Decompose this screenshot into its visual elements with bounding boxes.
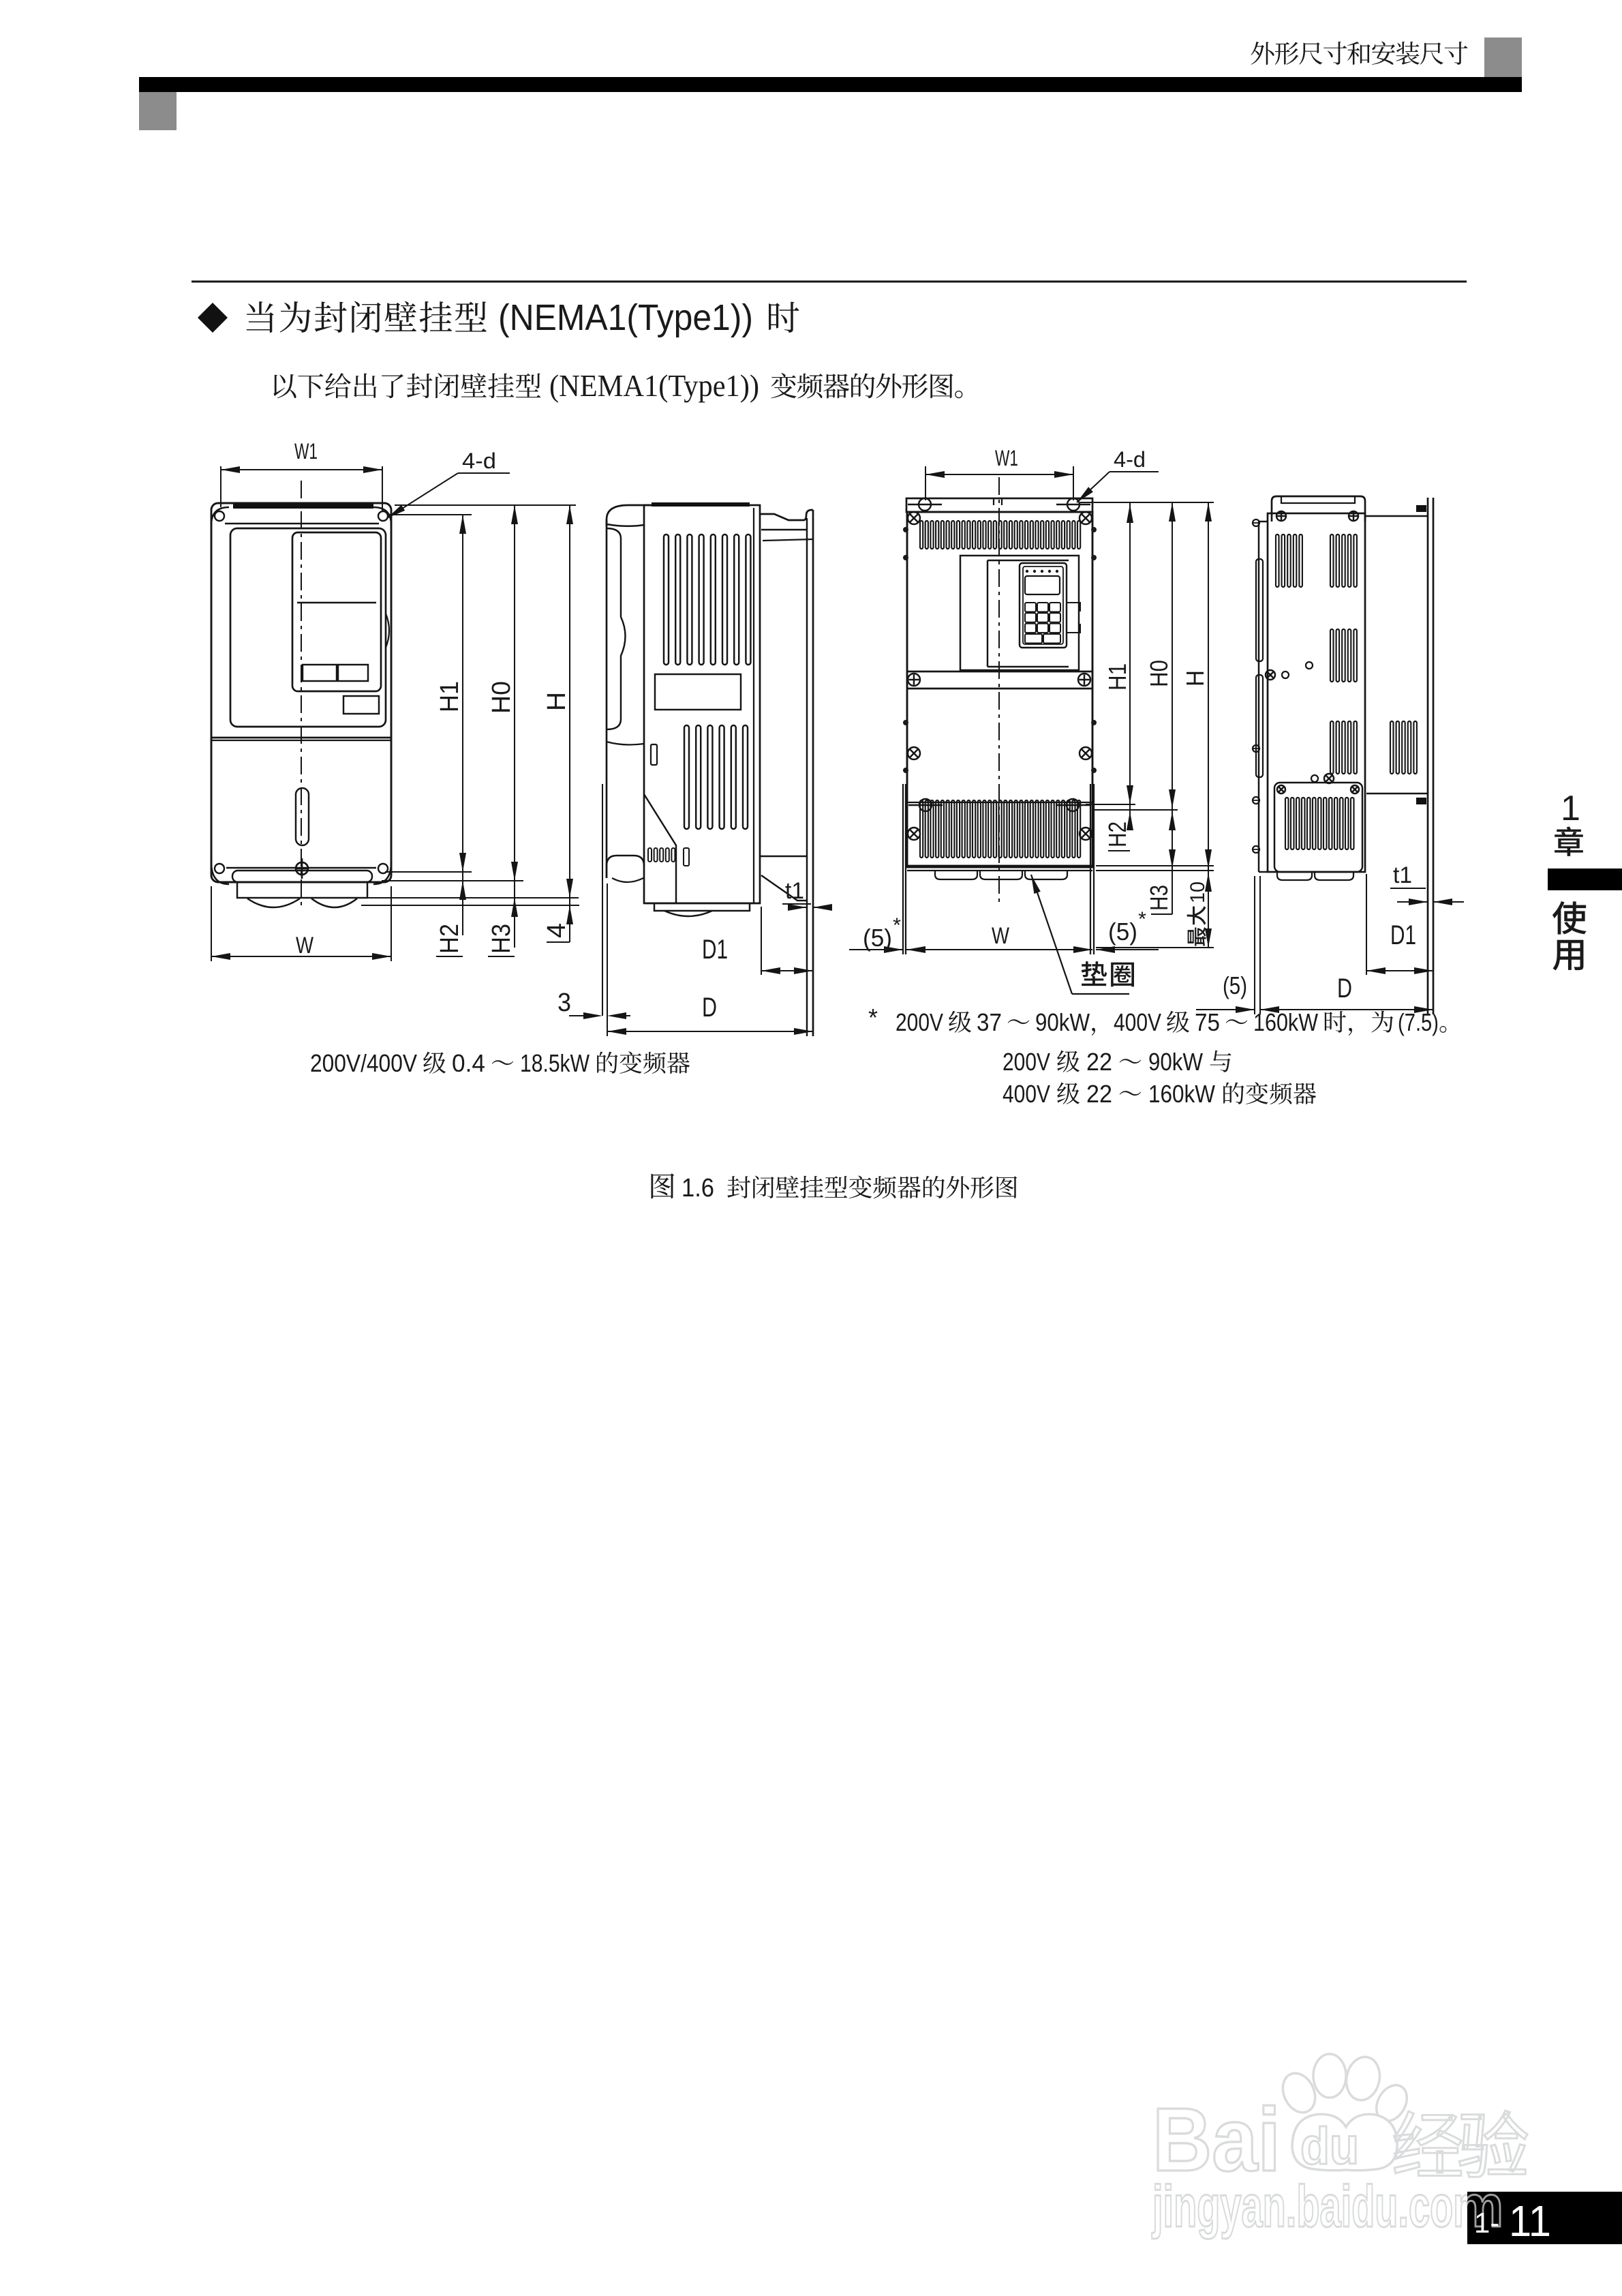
- svg-text:90kW: 90kW: [1035, 1008, 1090, 1036]
- svg-text:200V: 200V: [1003, 1048, 1050, 1076]
- svg-text:W1: W1: [995, 446, 1018, 470]
- svg-text:(5): (5): [1223, 971, 1247, 999]
- svg-text:10: 10: [1187, 881, 1209, 903]
- svg-text:W: W: [296, 933, 313, 958]
- svg-text:t1: t1: [1393, 862, 1412, 888]
- svg-text:11: 11: [1509, 2196, 1551, 2246]
- svg-text:H3: H3: [487, 924, 516, 954]
- svg-text:jingyan.baidu.com: jingyan.baidu.com: [1152, 2174, 1487, 2239]
- svg-text:H2: H2: [435, 924, 464, 954]
- svg-text:400V: 400V: [1114, 1008, 1161, 1036]
- svg-text:(NEMA1(Type1)): (NEMA1(Type1)): [498, 297, 753, 338]
- svg-text:*: *: [1138, 908, 1146, 931]
- svg-text:*: *: [868, 1003, 878, 1031]
- svg-text:1-: 1-: [1474, 2207, 1499, 2239]
- svg-text:160kW: 160kW: [1253, 1008, 1318, 1036]
- svg-text:18.5kW: 18.5kW: [520, 1049, 590, 1077]
- svg-text:D1: D1: [702, 935, 728, 965]
- svg-text:H: H: [542, 692, 571, 711]
- svg-text:H1: H1: [435, 681, 464, 712]
- svg-text:4-d: 4-d: [462, 449, 496, 473]
- svg-text:*: *: [893, 914, 901, 937]
- svg-text:75: 75: [1195, 1008, 1220, 1036]
- svg-text:200V/400V: 200V/400V: [310, 1049, 417, 1077]
- svg-text:(5): (5): [1108, 918, 1137, 946]
- svg-text:22: 22: [1086, 1080, 1112, 1108]
- svg-text:(7.5): (7.5): [1398, 1008, 1439, 1036]
- svg-text:90kW: 90kW: [1148, 1048, 1203, 1076]
- svg-text:W: W: [992, 923, 1009, 949]
- svg-text:1.6: 1.6: [682, 1174, 714, 1203]
- svg-text:37: 37: [977, 1008, 1002, 1036]
- svg-text:W1: W1: [294, 439, 318, 464]
- svg-text:400V: 400V: [1003, 1080, 1050, 1108]
- svg-text:H: H: [1181, 670, 1209, 686]
- svg-text:H1: H1: [1103, 663, 1131, 691]
- svg-text:4-d: 4-d: [1114, 447, 1146, 472]
- svg-text:t1: t1: [785, 878, 804, 904]
- svg-text:(NEMA1(Type1)): (NEMA1(Type1)): [549, 368, 759, 403]
- svg-text:(5): (5): [863, 924, 892, 952]
- svg-text:4: 4: [542, 923, 571, 938]
- svg-text:0.4: 0.4: [452, 1049, 485, 1077]
- svg-text:1: 1: [1561, 789, 1580, 828]
- svg-text:D1: D1: [1390, 920, 1416, 950]
- svg-text:H3: H3: [1145, 885, 1173, 911]
- svg-text:D: D: [1337, 973, 1352, 1003]
- svg-text:160kW: 160kW: [1148, 1080, 1215, 1108]
- svg-text:3: 3: [557, 988, 571, 1017]
- svg-text:D: D: [702, 993, 717, 1023]
- svg-text:H0: H0: [487, 681, 516, 714]
- svg-text:200V: 200V: [896, 1008, 943, 1036]
- svg-text:H2: H2: [1103, 821, 1131, 847]
- svg-text:22: 22: [1086, 1048, 1112, 1076]
- svg-text:H0: H0: [1145, 660, 1173, 687]
- svg-text:du: du: [1300, 2117, 1359, 2175]
